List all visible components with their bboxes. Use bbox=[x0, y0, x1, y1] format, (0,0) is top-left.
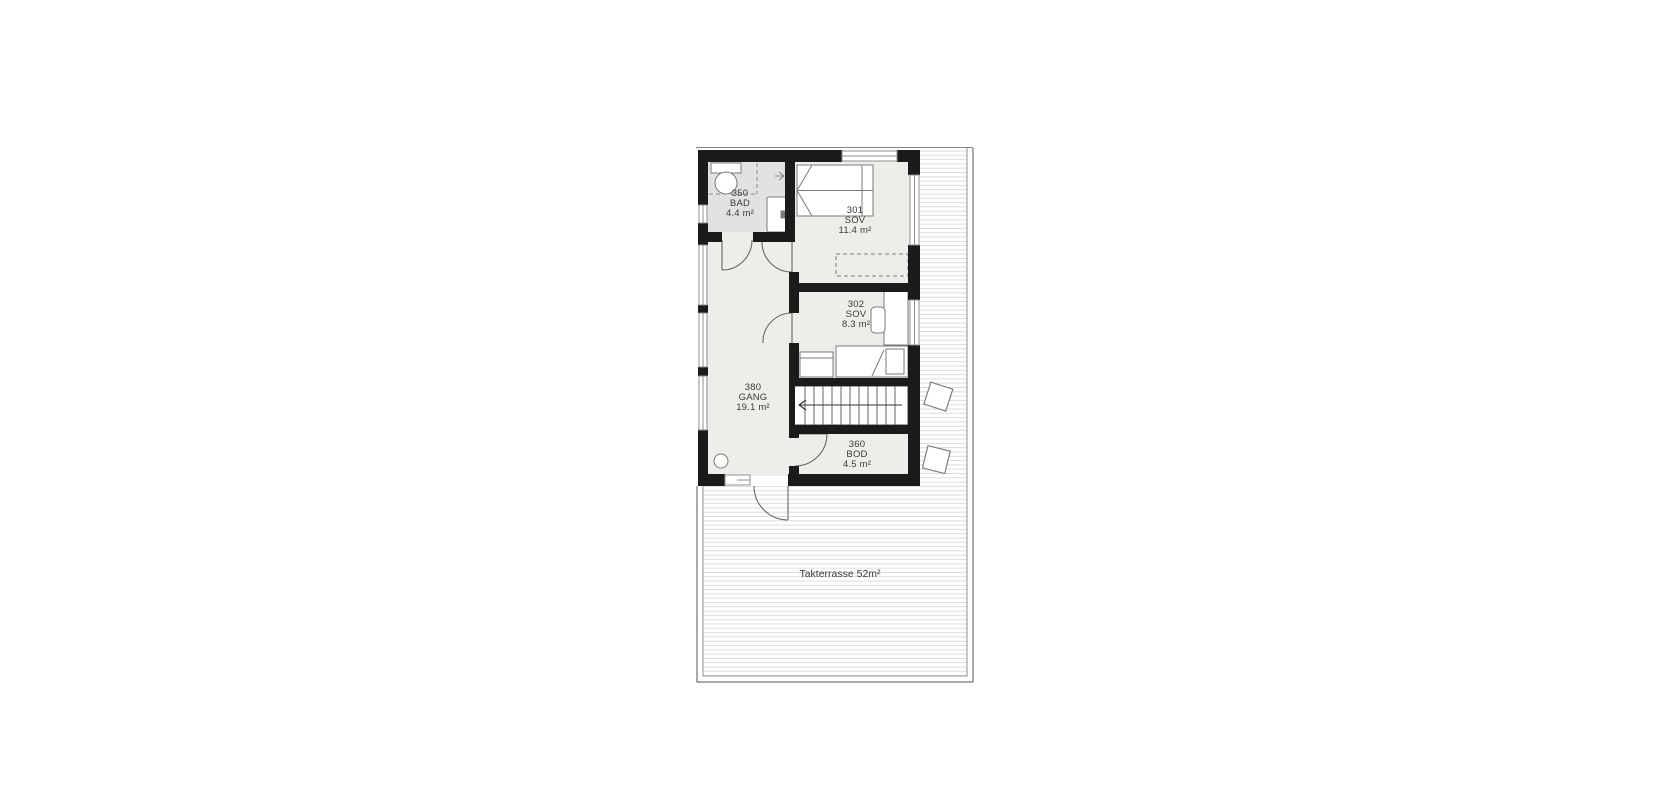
skylight-icon bbox=[922, 446, 950, 474]
wall-segment bbox=[788, 474, 920, 486]
wall-segment bbox=[789, 272, 799, 313]
terrace-deck bbox=[703, 486, 967, 676]
wall-segment bbox=[708, 232, 722, 242]
wall-segment bbox=[698, 474, 725, 486]
wall-segment bbox=[908, 245, 920, 300]
dresser-302 bbox=[800, 352, 833, 377]
room-area: 4.4 m² bbox=[726, 208, 754, 219]
wall-segment bbox=[698, 150, 842, 162]
chair-302 bbox=[871, 307, 885, 333]
floor-drain bbox=[714, 454, 728, 468]
room-area: 19.1 m² bbox=[736, 402, 770, 413]
wall-segment bbox=[789, 434, 799, 438]
floor-plan-canvas: 350 BAD 4.4 m² 301 SOV 11.4 m² 302 SOV 8… bbox=[0, 0, 1670, 800]
wall-segment bbox=[785, 162, 795, 240]
room-area: 8.3 m² bbox=[842, 319, 870, 330]
floor-plan-drawing: 350 BAD 4.4 m² 301 SOV 11.4 m² 302 SOV 8… bbox=[0, 0, 1670, 800]
wall-segment bbox=[795, 283, 908, 292]
wall-segment bbox=[698, 223, 708, 245]
side-deck bbox=[920, 148, 967, 486]
wall-mullion bbox=[698, 367, 708, 376]
wall-segment bbox=[753, 232, 795, 242]
wall-segment bbox=[789, 466, 799, 474]
wall-segment bbox=[789, 378, 908, 386]
wall-segment bbox=[789, 386, 795, 425]
terrace-label: Takterrasse 52m² bbox=[799, 568, 881, 580]
wall-mullion bbox=[698, 305, 708, 313]
faucet bbox=[781, 211, 785, 218]
wall-segment bbox=[908, 345, 920, 486]
wall-segment bbox=[698, 150, 708, 205]
bed-302 bbox=[836, 346, 908, 377]
desk-302 bbox=[884, 291, 908, 345]
wall-segment bbox=[789, 425, 908, 434]
room-area: 4.5 m² bbox=[843, 459, 871, 470]
stairs bbox=[794, 386, 908, 425]
room-area: 11.4 m² bbox=[839, 225, 872, 236]
wall-segment bbox=[908, 150, 920, 175]
